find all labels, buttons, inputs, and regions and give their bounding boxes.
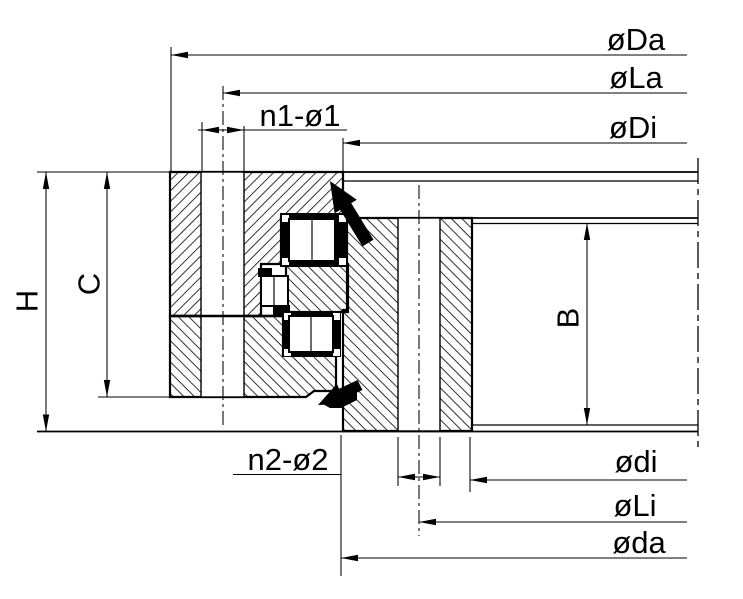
- radial-roller-row: [258, 268, 290, 317]
- label-inner-bolt-circle: øLi: [613, 488, 656, 523]
- label-inner-ring-outer-diameter: øda: [612, 525, 666, 560]
- label-outer-ring-height: C: [72, 273, 107, 295]
- inner-ring-rib: [286, 264, 348, 312]
- bearing-section: [170, 172, 472, 431]
- label-total-height: H: [10, 290, 45, 312]
- label-inner-ring-height: B: [551, 308, 586, 329]
- label-outer-ring-inner-diameter: øDi: [609, 110, 657, 145]
- thrust-roller-row-top: [280, 213, 348, 267]
- label-inner-ring-bolt-holes: n2-ø2: [248, 442, 329, 477]
- bearing-section-drawing: øDa øLa øDi n1-ø1 n2-ø2 ødi øLi øda H C …: [0, 0, 743, 599]
- label-outer-ring-bolt-holes: n1-ø1: [260, 98, 341, 133]
- label-outer-bolt-circle: øLa: [609, 60, 663, 95]
- thrust-roller-row-bottom: [282, 311, 341, 357]
- label-inner-bore-diameter: ødi: [614, 444, 657, 479]
- label-outer-diameter: øDa: [607, 22, 666, 57]
- inner-ring-bolt-hole: [398, 218, 440, 431]
- engineering-drawing-canvas: øDa øLa øDi n1-ø1 n2-ø2 ødi øLi øda H C …: [0, 0, 743, 599]
